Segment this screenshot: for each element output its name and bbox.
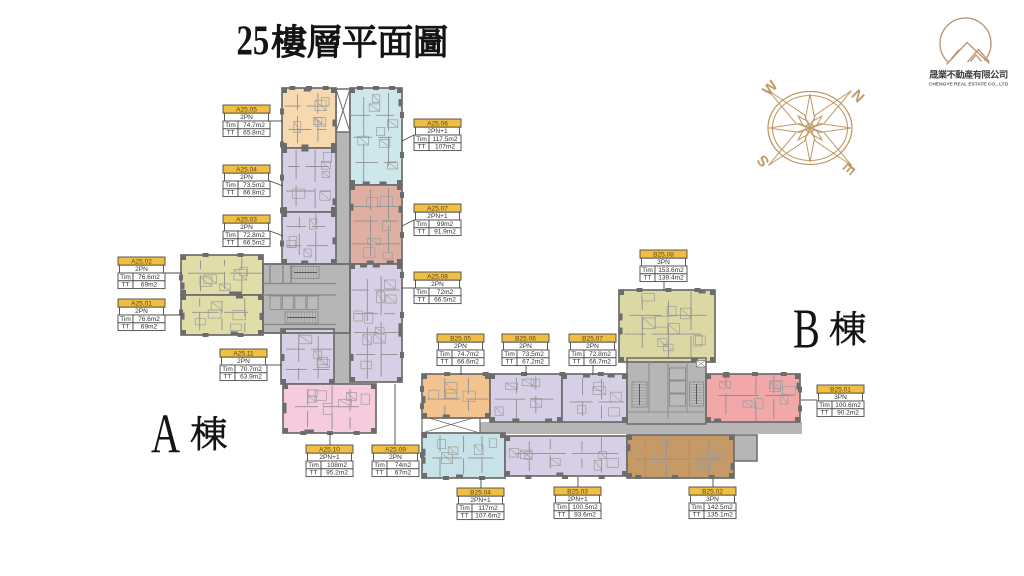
svg-text:Tim: Tim <box>225 182 236 189</box>
svg-text:TT: TT <box>227 130 235 137</box>
svg-text:100.5m2: 100.5m2 <box>572 504 598 511</box>
svg-text:A25.07: A25.07 <box>427 205 448 212</box>
svg-text:72.8m2: 72.8m2 <box>243 232 265 239</box>
svg-text:B25.06: B25.06 <box>515 335 536 342</box>
svg-text:Tim: Tim <box>308 462 319 469</box>
svg-text:117.5m2: 117.5m2 <box>433 136 458 143</box>
svg-text:B25.02: B25.02 <box>702 488 723 495</box>
svg-text:B25.01: B25.01 <box>830 386 851 393</box>
svg-text:Tim: Tim <box>416 136 427 143</box>
svg-text:TT: TT <box>227 190 235 197</box>
svg-text:Tim: Tim <box>642 267 653 274</box>
svg-text:74.7m2: 74.7m2 <box>243 122 265 129</box>
svg-text:Tim: Tim <box>819 402 830 409</box>
svg-text:2PN+1: 2PN+1 <box>427 128 448 135</box>
svg-text:Tim: Tim <box>120 274 131 281</box>
svg-text:117m2: 117m2 <box>478 505 498 512</box>
svg-text:TT: TT <box>573 359 581 366</box>
svg-text:TT: TT <box>821 410 829 417</box>
svg-text:2PN: 2PN <box>519 343 532 350</box>
svg-text:Tim: Tim <box>504 351 515 358</box>
svg-text:Tim: Tim <box>556 504 567 511</box>
svg-text:63.9m2: 63.9m2 <box>240 374 262 381</box>
svg-text:2PN+1: 2PN+1 <box>470 497 491 504</box>
svg-text:B25.03: B25.03 <box>567 488 588 495</box>
svg-text:67.2m2: 67.2m2 <box>522 359 544 366</box>
svg-text:TT: TT <box>558 512 566 519</box>
svg-text:TT: TT <box>441 359 449 366</box>
svg-text:76.6m2: 76.6m2 <box>138 274 160 281</box>
svg-text:TT: TT <box>506 359 514 366</box>
svg-text:2PN: 2PN <box>135 308 148 315</box>
svg-text:2PN: 2PN <box>586 343 599 350</box>
svg-text:B25.08: B25.08 <box>653 251 674 258</box>
svg-text:70.7m2: 70.7m2 <box>240 366 262 373</box>
svg-text:100.6m2: 100.6m2 <box>835 402 861 409</box>
svg-text:3PN: 3PN <box>834 394 847 401</box>
svg-text:2PN: 2PN <box>454 343 467 350</box>
svg-text:69m2: 69m2 <box>141 282 158 289</box>
svg-text:2PN+1: 2PN+1 <box>319 454 340 461</box>
svg-text:Tim: Tim <box>416 289 427 296</box>
svg-text:69m2: 69m2 <box>141 324 158 331</box>
svg-text:2PN: 2PN <box>389 454 402 461</box>
svg-text:91.9m2: 91.9m2 <box>434 229 456 236</box>
svg-text:Tim: Tim <box>439 351 450 358</box>
svg-text:2PN: 2PN <box>240 114 253 121</box>
svg-text:TT: TT <box>644 275 652 282</box>
svg-text:A25.11: A25.11 <box>233 350 254 357</box>
svg-text:A: A <box>151 403 180 465</box>
svg-text:Tim: Tim <box>222 366 233 373</box>
svg-text:A25.01: A25.01 <box>131 300 152 307</box>
svg-text:2PN+1: 2PN+1 <box>427 213 448 220</box>
svg-text:72.8m2: 72.8m2 <box>589 351 611 358</box>
svg-text:TT: TT <box>376 470 384 477</box>
svg-text:65.8m2: 65.8m2 <box>243 130 265 137</box>
svg-text:73.5m2: 73.5m2 <box>522 351 544 358</box>
svg-text:74m2: 74m2 <box>395 462 412 469</box>
svg-text:93.6m2: 93.6m2 <box>574 512 596 519</box>
svg-text:B25.04: B25.04 <box>470 489 491 496</box>
svg-text:66.5m2: 66.5m2 <box>434 297 456 304</box>
svg-text:2PN: 2PN <box>237 358 250 365</box>
svg-text:TT: TT <box>693 512 701 519</box>
svg-text:153.6m2: 153.6m2 <box>658 267 684 274</box>
svg-text:66.7m2: 66.7m2 <box>589 359 611 366</box>
svg-text:107.6m2: 107.6m2 <box>475 513 501 520</box>
svg-text:TT: TT <box>418 229 426 236</box>
svg-text:108m2: 108m2 <box>327 462 347 469</box>
svg-text:TT: TT <box>418 297 426 304</box>
svg-text:25: 25 <box>237 18 270 65</box>
svg-text:A25.06: A25.06 <box>427 120 448 127</box>
svg-text:A25.04: A25.04 <box>236 166 257 173</box>
svg-text:74.7m2: 74.7m2 <box>457 351 479 358</box>
svg-text:A25.02: A25.02 <box>131 258 152 265</box>
svg-text:95.2m2: 95.2m2 <box>326 470 348 477</box>
svg-text:2PN: 2PN <box>240 174 253 181</box>
svg-text:99m2: 99m2 <box>437 221 454 228</box>
svg-text:2PN: 2PN <box>431 281 444 288</box>
svg-text:Tim: Tim <box>120 316 131 323</box>
svg-text:Tim: Tim <box>691 504 702 511</box>
svg-text:TT: TT <box>122 324 130 331</box>
svg-text:3PN: 3PN <box>706 496 719 503</box>
svg-text:76.6m2: 76.6m2 <box>138 316 160 323</box>
svg-text:TT: TT <box>122 282 130 289</box>
svg-text:66.6m2: 66.6m2 <box>457 359 479 366</box>
svg-text:72m2: 72m2 <box>437 289 454 296</box>
svg-text:2PN: 2PN <box>135 266 148 273</box>
svg-text:73.5m2: 73.5m2 <box>243 182 265 189</box>
svg-text:A25.10: A25.10 <box>319 446 340 453</box>
svg-text:B: B <box>793 298 820 360</box>
svg-text:2PN: 2PN <box>240 224 253 231</box>
svg-text:90.2m2: 90.2m2 <box>837 410 859 417</box>
svg-text:TT: TT <box>418 144 426 151</box>
svg-text:A25.09: A25.09 <box>385 446 406 453</box>
svg-text:142.5m2: 142.5m2 <box>707 504 733 511</box>
svg-text:Tim: Tim <box>571 351 582 358</box>
svg-text:B25.07: B25.07 <box>582 335 603 342</box>
svg-text:TT: TT <box>227 240 235 247</box>
svg-text:135.1m2: 135.1m2 <box>707 512 733 519</box>
svg-text:66.5m2: 66.5m2 <box>243 240 265 247</box>
svg-text:TT: TT <box>224 374 232 381</box>
svg-text:Tim: Tim <box>225 232 236 239</box>
svg-text:A25.05: A25.05 <box>236 106 257 113</box>
svg-text:CHENGYE REAL ESTATE CO., LTD: CHENGYE REAL ESTATE CO., LTD <box>929 82 1009 88</box>
svg-text:Tim: Tim <box>225 122 236 129</box>
svg-text:TT: TT <box>461 513 469 520</box>
svg-text:107m2: 107m2 <box>435 144 455 151</box>
svg-text:Tim: Tim <box>416 221 427 228</box>
svg-text:TT: TT <box>310 470 318 477</box>
svg-text:66.8m2: 66.8m2 <box>243 190 265 197</box>
svg-text:67m2: 67m2 <box>395 470 412 477</box>
svg-text:2PN+1: 2PN+1 <box>567 496 588 503</box>
svg-text:Tim: Tim <box>374 462 385 469</box>
svg-text:3PN: 3PN <box>657 259 670 266</box>
svg-text:A25.03: A25.03 <box>236 216 257 223</box>
svg-text:Tim: Tim <box>459 505 470 512</box>
svg-text:B25.05: B25.05 <box>450 335 471 342</box>
svg-text:A25.08: A25.08 <box>427 273 448 280</box>
svg-text:139.4m2: 139.4m2 <box>658 275 684 282</box>
